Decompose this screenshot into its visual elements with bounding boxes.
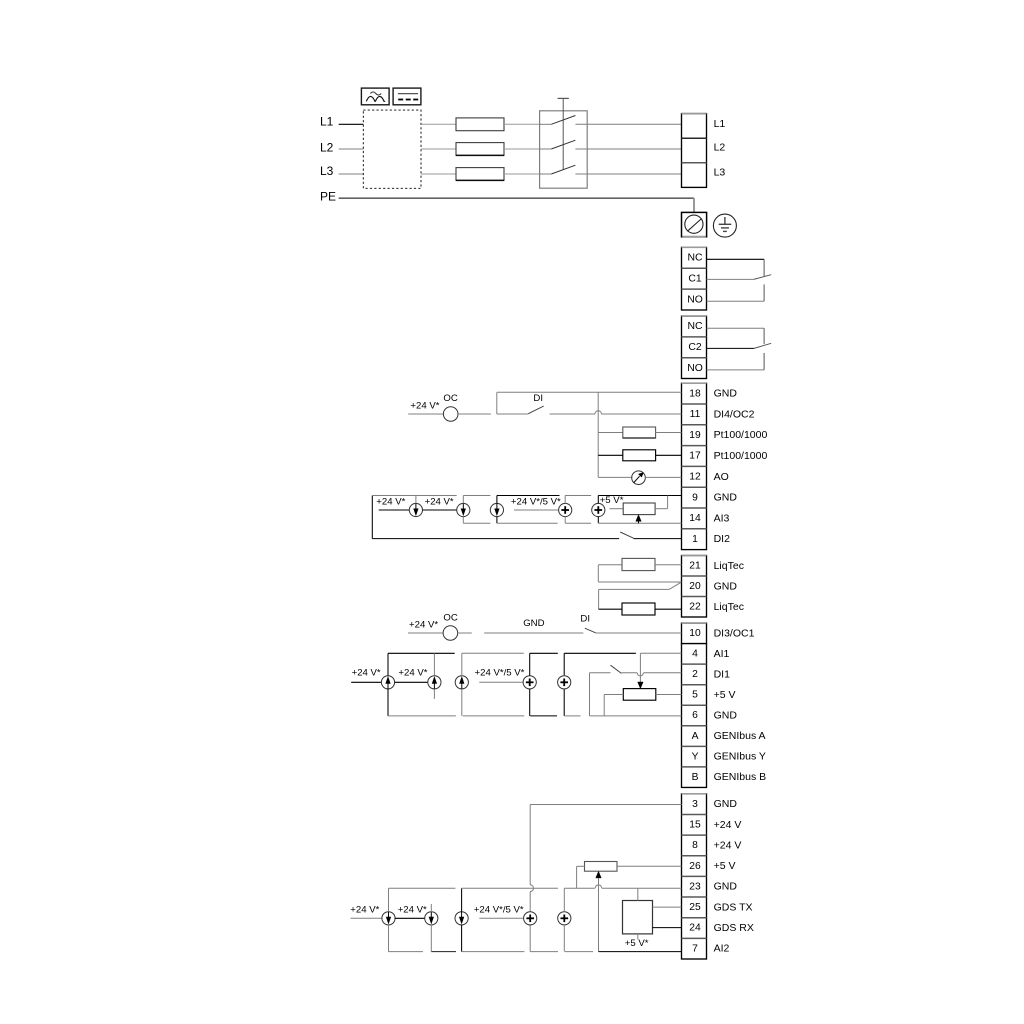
svg-text:+24 V: +24 V <box>714 819 742 831</box>
svg-text:24: 24 <box>689 923 701 934</box>
svg-text:21: 21 <box>689 560 701 571</box>
svg-text:10: 10 <box>689 628 701 639</box>
svg-text:GENIbus B: GENIbus B <box>714 771 767 783</box>
svg-text:DI4/OC2: DI4/OC2 <box>714 408 755 420</box>
svg-text:+24 V: +24 V <box>714 839 742 851</box>
svg-text:18: 18 <box>689 388 701 399</box>
svg-text:+24 V*: +24 V* <box>409 620 438 631</box>
svg-text:C1: C1 <box>688 273 702 284</box>
svg-text:OC: OC <box>443 393 457 404</box>
svg-text:2: 2 <box>692 669 698 680</box>
svg-text:C2: C2 <box>688 342 702 353</box>
svg-text:Y: Y <box>692 751 699 762</box>
svg-text:+5 V: +5 V <box>714 689 736 701</box>
svg-text:20: 20 <box>689 581 701 592</box>
svg-text:14: 14 <box>689 513 701 524</box>
svg-text:PE: PE <box>320 190 336 204</box>
svg-text:LiqTec: LiqTec <box>714 560 744 572</box>
svg-text:17: 17 <box>689 451 701 462</box>
svg-text:19: 19 <box>689 430 701 441</box>
svg-text:L3: L3 <box>320 164 334 178</box>
svg-text:Pt100/1000: Pt100/1000 <box>714 450 768 462</box>
svg-text:+24 V*: +24 V* <box>376 497 405 508</box>
svg-text:+24 V*: +24 V* <box>398 667 427 678</box>
svg-text:5: 5 <box>692 690 698 701</box>
svg-text:GND: GND <box>714 798 738 810</box>
svg-text:+5 V*: +5 V* <box>600 495 624 506</box>
svg-text:GND: GND <box>714 881 738 893</box>
svg-text:GDS TX: GDS TX <box>714 901 753 913</box>
svg-text:DI2: DI2 <box>714 533 731 545</box>
svg-text:4: 4 <box>692 649 698 660</box>
svg-text:NC: NC <box>687 321 703 332</box>
svg-text:6: 6 <box>692 710 698 721</box>
svg-text:AI3: AI3 <box>714 512 730 524</box>
svg-text:DI: DI <box>533 393 543 404</box>
svg-text:GND: GND <box>523 618 544 629</box>
svg-text:LiqTec: LiqTec <box>714 601 744 613</box>
svg-text:GND: GND <box>714 388 738 400</box>
svg-text:GND: GND <box>714 710 738 722</box>
svg-text:GDS RX: GDS RX <box>714 922 754 934</box>
svg-text:22: 22 <box>689 601 701 612</box>
svg-text:GENIbus Y: GENIbus Y <box>714 751 766 763</box>
svg-text:8: 8 <box>692 840 698 851</box>
svg-text:NO: NO <box>687 363 703 374</box>
svg-text:AO: AO <box>714 471 729 483</box>
svg-text:12: 12 <box>689 472 701 483</box>
svg-text:GENIbus A: GENIbus A <box>714 730 766 742</box>
svg-text:AI1: AI1 <box>714 648 730 660</box>
svg-text:26: 26 <box>689 861 701 872</box>
svg-text:L2: L2 <box>320 141 334 155</box>
svg-text:GND: GND <box>714 492 738 504</box>
svg-text:DI: DI <box>580 614 590 625</box>
svg-text:7: 7 <box>692 943 698 954</box>
svg-text:25: 25 <box>689 902 701 913</box>
svg-text:NC: NC <box>687 252 703 263</box>
svg-text:L1: L1 <box>714 118 726 130</box>
svg-text:+5 V*: +5 V* <box>625 938 649 949</box>
svg-text:NO: NO <box>687 294 703 305</box>
svg-text:3: 3 <box>692 799 698 810</box>
svg-text:+24 V*: +24 V* <box>350 905 379 916</box>
svg-text:+24 V*: +24 V* <box>352 667 381 678</box>
svg-text:Pt100/1000: Pt100/1000 <box>714 429 768 441</box>
svg-text:B: B <box>692 772 699 783</box>
svg-text:L1: L1 <box>320 115 334 129</box>
svg-text:+24 V*: +24 V* <box>410 401 439 412</box>
svg-text:+24 V*/5 V*: +24 V*/5 V* <box>474 905 524 916</box>
svg-text:L2: L2 <box>714 142 726 154</box>
svg-text:DI1: DI1 <box>714 668 731 680</box>
svg-text:L3: L3 <box>714 166 726 178</box>
svg-text:23: 23 <box>689 881 701 892</box>
svg-text:GND: GND <box>714 580 738 592</box>
svg-text:+24 V*: +24 V* <box>398 905 427 916</box>
svg-text:AI2: AI2 <box>714 943 730 955</box>
svg-text:+24 V*/5 V*: +24 V*/5 V* <box>475 667 525 678</box>
svg-text:OC: OC <box>443 612 457 623</box>
svg-text:15: 15 <box>689 819 701 830</box>
svg-text:DI3/OC1: DI3/OC1 <box>714 627 755 639</box>
svg-text:+24 V*: +24 V* <box>425 497 454 508</box>
svg-text:1: 1 <box>692 534 698 545</box>
svg-text:9: 9 <box>692 492 698 503</box>
svg-text:A: A <box>692 731 699 742</box>
svg-text:+24 V*/5 V*: +24 V*/5 V* <box>511 497 561 508</box>
svg-text:11: 11 <box>690 409 701 420</box>
svg-text:+5 V: +5 V <box>714 860 736 872</box>
